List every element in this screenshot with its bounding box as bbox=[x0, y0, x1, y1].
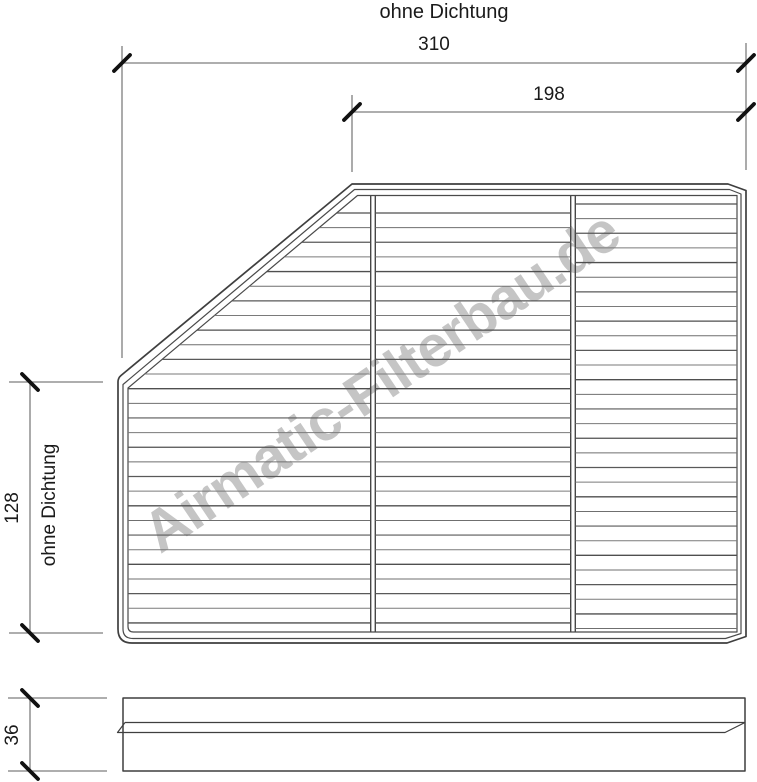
filter-outline-inner bbox=[128, 196, 737, 633]
dim-198-lines bbox=[352, 95, 746, 172]
label-ohne-dichtung-left: ohne Dichtung bbox=[39, 444, 60, 567]
side-view-step-lines bbox=[118, 723, 746, 733]
dim-label-310: 310 bbox=[418, 34, 450, 55]
label-title: ohne Dichtung bbox=[380, 1, 509, 23]
side-view-outline bbox=[123, 698, 745, 771]
watermark-text: Airmatic-Filterbau.de bbox=[131, 199, 631, 566]
dim-label-36: 36 bbox=[2, 724, 23, 745]
dim-label-128: 128 bbox=[2, 492, 23, 524]
filter-technical-drawing: Airmatic-Filterbau.de bbox=[0, 0, 757, 782]
dim-label-198: 198 bbox=[533, 84, 565, 105]
filter-side-view bbox=[118, 698, 746, 771]
dimension-ticks bbox=[22, 55, 754, 779]
filter-top-view bbox=[118, 184, 746, 643]
filter-technical-drawing-page: Airmatic-Filterbau.de bbox=[0, 0, 757, 782]
filter-outline-outer bbox=[118, 184, 746, 643]
pleat-lines-left bbox=[119, 213, 371, 623]
